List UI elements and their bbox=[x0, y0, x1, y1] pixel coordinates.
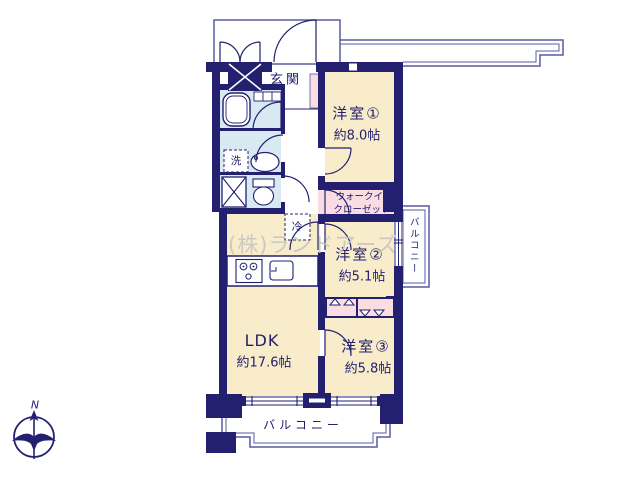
watermark: (株)ランドアーズ bbox=[228, 229, 398, 259]
wic-label-line2: クローゼット bbox=[333, 205, 390, 215]
bathtub bbox=[223, 93, 250, 126]
floor-plan: 玄関 洋室① 約8.0帖 ウォークイン クローゼット 洋室② 約5.1帖 洋室③… bbox=[0, 0, 640, 480]
toilet-door bbox=[283, 176, 309, 202]
room1-size: 約8.0帖 bbox=[334, 130, 381, 143]
corridor-outline-inner bbox=[340, 44, 559, 62]
compass-icon bbox=[12, 410, 56, 459]
ldk-label: LDK bbox=[245, 333, 280, 349]
toilet-bowl bbox=[254, 187, 274, 205]
room3-size: 約5.8帖 bbox=[345, 363, 392, 376]
room2-size: 約5.1帖 bbox=[339, 271, 386, 284]
closet-band bbox=[326, 298, 394, 317]
ldk-size: 約17.6帖 bbox=[237, 357, 292, 370]
wic-label-line1: ウォークイン bbox=[335, 192, 392, 202]
entrance-label: 玄関 bbox=[270, 74, 302, 87]
room1-label: 洋室① bbox=[332, 107, 381, 122]
room1-window-slit bbox=[349, 64, 357, 71]
room3-floor bbox=[325, 317, 394, 397]
toilet-tank bbox=[253, 179, 274, 187]
wash-basin bbox=[251, 153, 279, 172]
entry-porch bbox=[214, 20, 340, 64]
balcony-bottom-label: バルコニー bbox=[263, 419, 343, 431]
balcony-right-label: バルコニー bbox=[408, 217, 418, 275]
entry-step bbox=[310, 74, 319, 108]
window-room3 bbox=[331, 396, 377, 406]
bath-counter bbox=[254, 92, 281, 101]
window-center-slit bbox=[309, 399, 325, 403]
washer-label: 洗 bbox=[231, 156, 242, 167]
room3-label: 洋室③ bbox=[341, 340, 390, 355]
window-ldk bbox=[246, 396, 303, 406]
compass-north-label: N bbox=[31, 400, 39, 411]
